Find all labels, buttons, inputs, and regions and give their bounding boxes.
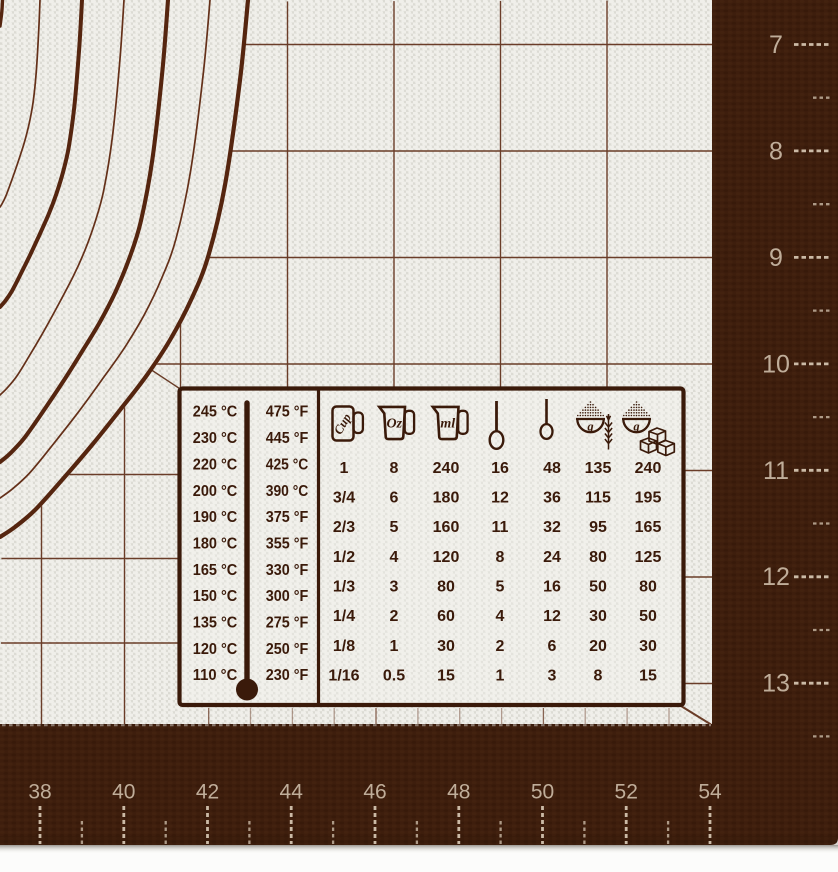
- svg-text:50: 50: [531, 781, 554, 804]
- svg-text:230 °F: 230 °F: [266, 667, 309, 684]
- svg-text:60: 60: [437, 608, 455, 625]
- svg-text:16: 16: [543, 579, 561, 596]
- svg-text:445 °F: 445 °F: [266, 430, 309, 447]
- svg-text:220 °C: 220 °C: [193, 456, 238, 473]
- svg-text:95: 95: [589, 519, 607, 536]
- svg-text:g: g: [586, 420, 593, 434]
- svg-text:165: 165: [635, 519, 662, 536]
- svg-text:4: 4: [390, 549, 399, 566]
- svg-text:11: 11: [763, 457, 789, 485]
- svg-text:8: 8: [496, 549, 505, 566]
- svg-text:80: 80: [589, 549, 607, 566]
- svg-text:135: 135: [585, 460, 612, 477]
- svg-text:38: 38: [28, 781, 51, 804]
- svg-text:245 °C: 245 °C: [193, 404, 238, 421]
- svg-text:7: 7: [769, 31, 783, 59]
- svg-text:240: 240: [433, 460, 460, 477]
- svg-text:135 °C: 135 °C: [193, 615, 238, 632]
- svg-text:110 °C: 110 °C: [193, 667, 238, 684]
- svg-text:2/3: 2/3: [333, 519, 355, 536]
- svg-text:9: 9: [769, 244, 783, 272]
- svg-text:15: 15: [639, 668, 657, 685]
- svg-text:425 °C: 425 °C: [266, 456, 309, 473]
- svg-text:2: 2: [390, 608, 399, 625]
- svg-text:190 °C: 190 °C: [193, 509, 238, 526]
- svg-text:52: 52: [615, 781, 638, 804]
- svg-text:12: 12: [491, 490, 509, 507]
- svg-text:8: 8: [769, 137, 783, 165]
- svg-text:1: 1: [496, 668, 505, 685]
- svg-text:30: 30: [589, 608, 607, 625]
- svg-text:165 °C: 165 °C: [193, 562, 238, 579]
- svg-text:390 °C: 390 °C: [266, 483, 309, 500]
- svg-text:24: 24: [543, 549, 561, 566]
- svg-text:2: 2: [496, 638, 505, 655]
- svg-text:250 °F: 250 °F: [266, 641, 309, 658]
- svg-text:32: 32: [543, 519, 561, 536]
- svg-text:54: 54: [698, 781, 722, 804]
- svg-text:3: 3: [390, 579, 399, 596]
- svg-text:42: 42: [196, 781, 219, 804]
- svg-text:5: 5: [496, 579, 505, 596]
- svg-text:240: 240: [635, 460, 662, 477]
- svg-text:48: 48: [543, 460, 561, 477]
- svg-text:1: 1: [390, 638, 399, 655]
- svg-text:300 °F: 300 °F: [266, 588, 309, 605]
- svg-text:12: 12: [543, 608, 561, 625]
- svg-text:12: 12: [762, 563, 790, 591]
- svg-text:10: 10: [762, 350, 790, 378]
- svg-text:150 °C: 150 °C: [193, 588, 238, 605]
- svg-text:1/8: 1/8: [333, 638, 355, 655]
- svg-text:355 °F: 355 °F: [266, 536, 309, 553]
- svg-text:230 °C: 230 °C: [193, 430, 238, 447]
- svg-text:8: 8: [390, 460, 399, 477]
- svg-text:180: 180: [433, 490, 460, 507]
- svg-text:30: 30: [437, 638, 455, 655]
- svg-text:80: 80: [639, 579, 657, 596]
- svg-text:20: 20: [589, 638, 607, 655]
- svg-text:11: 11: [492, 519, 509, 536]
- svg-text:50: 50: [589, 579, 607, 596]
- svg-text:125: 125: [635, 549, 662, 566]
- svg-text:200 °C: 200 °C: [193, 483, 238, 500]
- svg-text:120: 120: [433, 549, 460, 566]
- svg-text:g: g: [632, 420, 639, 434]
- svg-text:160: 160: [433, 519, 460, 536]
- svg-text:1/16: 1/16: [328, 668, 359, 685]
- svg-text:15: 15: [437, 668, 455, 685]
- svg-text:50: 50: [639, 608, 657, 625]
- svg-text:1/2: 1/2: [333, 549, 355, 566]
- svg-text:44: 44: [280, 781, 304, 804]
- svg-text:3: 3: [548, 668, 557, 685]
- svg-text:180 °C: 180 °C: [193, 536, 238, 553]
- svg-text:5: 5: [390, 519, 399, 536]
- svg-text:3/4: 3/4: [333, 490, 355, 507]
- svg-text:16: 16: [491, 460, 509, 477]
- svg-text:1/4: 1/4: [333, 608, 355, 625]
- svg-text:30: 30: [639, 638, 657, 655]
- svg-text:375 °F: 375 °F: [266, 509, 309, 526]
- svg-text:46: 46: [363, 781, 386, 804]
- svg-text:275 °F: 275 °F: [266, 615, 309, 632]
- svg-text:4: 4: [496, 608, 505, 625]
- svg-text:6: 6: [390, 490, 399, 507]
- svg-text:195: 195: [635, 490, 662, 507]
- svg-text:8: 8: [594, 668, 603, 685]
- svg-text:13: 13: [762, 670, 790, 698]
- svg-text:80: 80: [437, 579, 455, 596]
- svg-text:1: 1: [340, 460, 349, 477]
- svg-text:Oz: Oz: [387, 417, 403, 432]
- svg-text:115: 115: [585, 490, 611, 507]
- svg-text:1/3: 1/3: [333, 579, 355, 596]
- svg-text:40: 40: [112, 781, 135, 804]
- svg-text:48: 48: [447, 781, 470, 804]
- svg-text:ml: ml: [440, 417, 455, 432]
- svg-text:120 °C: 120 °C: [193, 641, 238, 658]
- svg-text:36: 36: [543, 490, 561, 507]
- svg-text:330 °F: 330 °F: [266, 562, 309, 579]
- svg-text:475 °F: 475 °F: [266, 404, 309, 421]
- svg-text:6: 6: [548, 638, 557, 655]
- svg-text:0.5: 0.5: [383, 668, 405, 685]
